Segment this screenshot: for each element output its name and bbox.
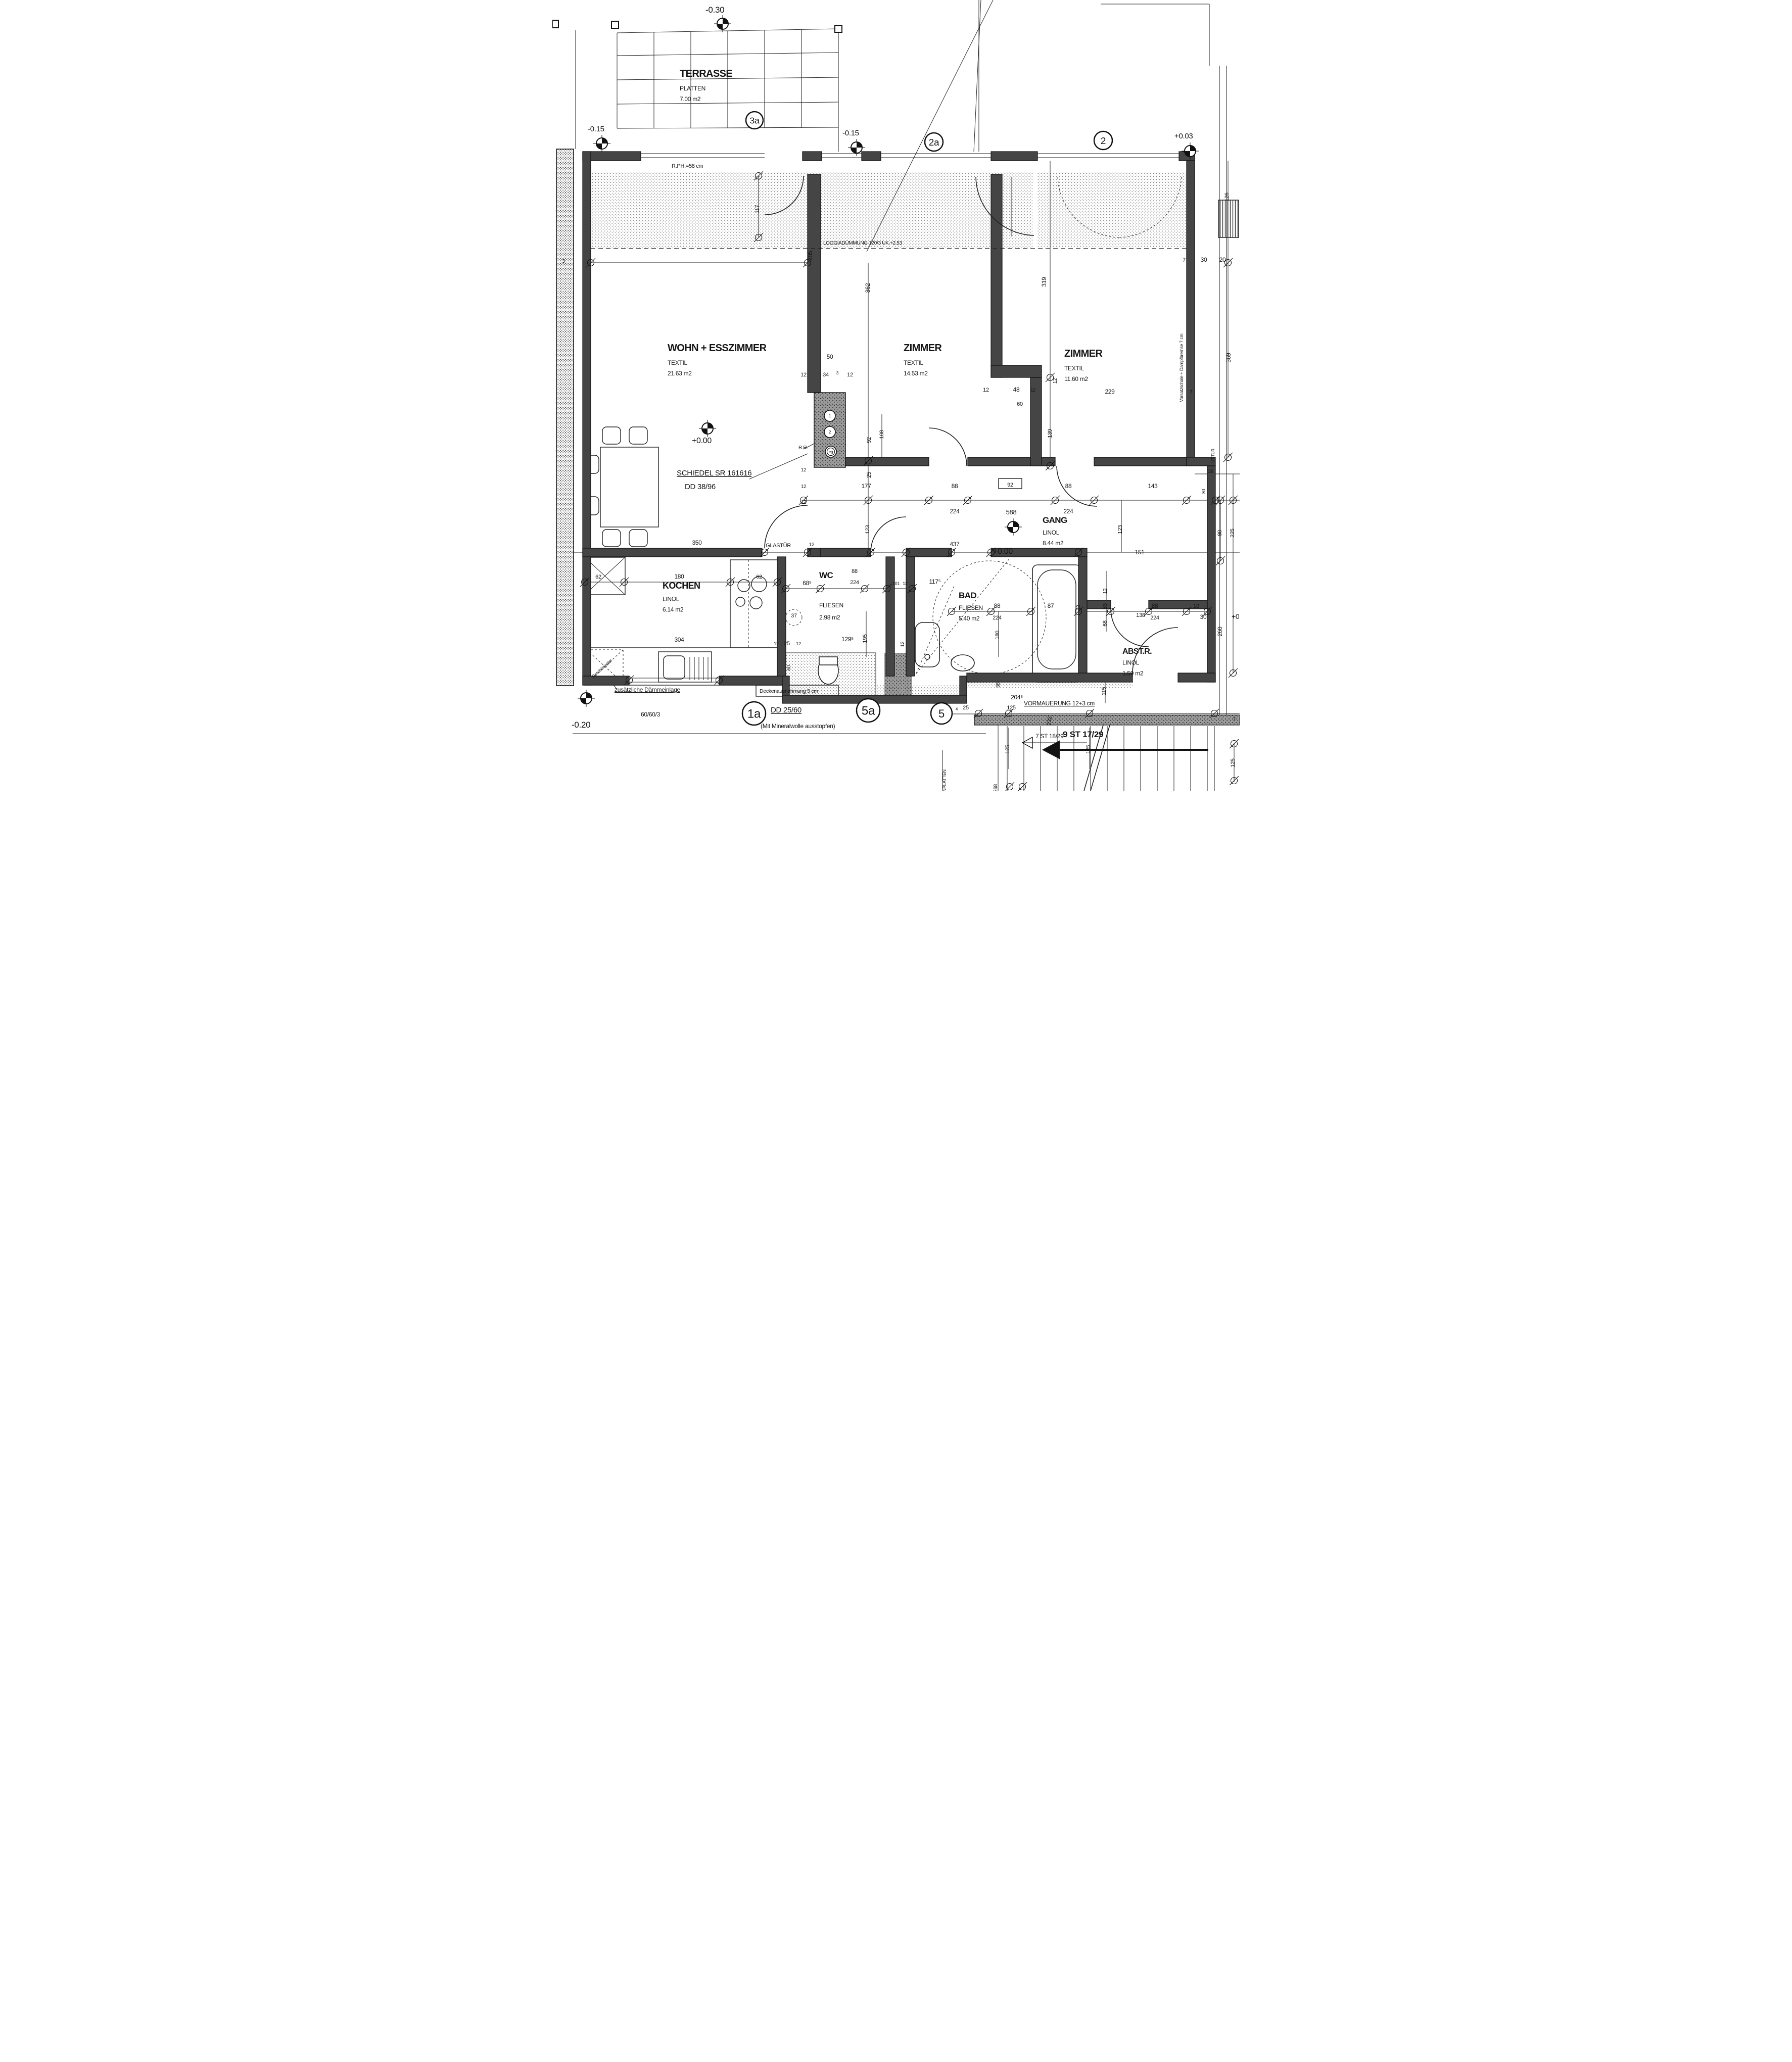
annotation-label: 12: [774, 641, 779, 646]
annotation-label: SCHIEDEL SR 161616: [677, 469, 751, 477]
room-material: LINOL: [1122, 659, 1140, 666]
annotation-label: 229: [1105, 388, 1115, 395]
annotation-label: 9 ST 17/29: [1063, 730, 1103, 739]
bad-door-swing: [933, 561, 1046, 674]
annotation-label: 34: [823, 372, 829, 378]
annotation-label: 123: [865, 525, 871, 534]
annotation-label: 126: [1224, 193, 1230, 202]
annotation-label: 68: [1102, 620, 1108, 627]
annotation-label: 88: [1065, 483, 1072, 490]
chair: [629, 530, 647, 547]
annotation-label: 117⁵: [929, 578, 941, 585]
level-marker: [593, 135, 610, 152]
axis-bubble-label: 2a: [929, 137, 939, 148]
annotation-label: 87: [1048, 602, 1054, 609]
annotation-label: 108: [879, 430, 885, 439]
dim-tick: [947, 607, 956, 616]
annotation-label: 12: [801, 467, 807, 473]
axis-bubble-label: 3a: [749, 115, 760, 125]
dim-tick: [1216, 556, 1225, 565]
annotation-label: R.R.: [798, 445, 808, 451]
annotation-label: 68⁵: [803, 580, 812, 587]
annotation-label: 12: [903, 581, 908, 586]
room-area: 14.53 m2: [904, 370, 928, 377]
washbasin-wc: [915, 622, 939, 667]
chair: [602, 530, 621, 547]
annotation-label: DD 38/96: [685, 483, 716, 491]
annotation-label: 25: [784, 641, 790, 647]
room-material: TEXTIL: [668, 359, 688, 366]
annotation-label: 319: [1041, 277, 1048, 287]
annotation-label: 224: [1150, 615, 1159, 621]
room-name: TERRASSE: [680, 68, 732, 79]
room-area: 5.40 m2: [959, 615, 980, 622]
annotation-label: 4: [956, 707, 958, 711]
annotation-label: Deckenausnehmung 5 cm: [760, 688, 818, 694]
room-material: TEXTIL: [904, 359, 924, 366]
floor-plan-page: 3a2a21a5a5 12eg TERRASSEPLATTEN7.00 m2WO…: [552, 0, 1240, 791]
stairwell-wall: [974, 715, 1240, 725]
annotation-label: 88: [1152, 602, 1158, 609]
annotation-label: 7: [1183, 257, 1186, 263]
room-name: ZIMMER: [1064, 348, 1103, 359]
annotation-label: 12: [796, 641, 801, 646]
annotation-label: +0.03: [1232, 612, 1240, 620]
annotation-label: LOGGIADÜMMUNG 120/3 UK.+2.53: [823, 240, 903, 246]
annotation-label: 60: [1017, 401, 1023, 407]
annotation-label: 12: [1076, 605, 1081, 610]
annotation-label: 30: [1201, 256, 1207, 263]
dim-tick: [726, 578, 735, 587]
annotation-label: 125: [1007, 705, 1016, 711]
annotation-label: 268: [993, 784, 999, 791]
toilet-cistern: [819, 657, 837, 665]
annotation-label: UT-TÜR: [1211, 449, 1215, 463]
annotation-label: 88: [952, 483, 958, 490]
room-area: 6.14 m2: [663, 606, 684, 613]
room-material: TEXTIL: [1064, 365, 1084, 372]
annotation-label: 117: [754, 205, 761, 214]
stair-arrow-main: [1043, 741, 1060, 759]
washbasin-bad: [951, 655, 974, 671]
annotation-label: 30: [1200, 613, 1207, 620]
dim-tick: [1182, 496, 1191, 505]
room-area: 1.59 m2: [1122, 670, 1144, 677]
annotation-label: 138: [1136, 612, 1145, 618]
dim-tick: [1230, 776, 1239, 785]
cooktop-burner: [738, 580, 750, 592]
annotation-label: 16: [1208, 469, 1213, 474]
annotation-label: 3: [562, 259, 565, 264]
annotation-label: 195: [862, 634, 868, 643]
annotation-label: 12: [1030, 388, 1035, 393]
annotation-label: -0.30: [705, 5, 724, 15]
wc-door-swing: [871, 517, 906, 552]
room-name: WC: [819, 570, 833, 580]
annotation-label: 232: [1046, 716, 1053, 726]
annotation-label: 88: [852, 568, 858, 574]
axis-bubble-label: 1a: [747, 707, 761, 721]
axis-bubble-label: 5: [938, 707, 945, 720]
annotation-label: 98: [1217, 530, 1223, 536]
dim-tick: [1090, 496, 1099, 505]
annotation-label: 125: [1086, 745, 1092, 754]
bathtub: [1032, 565, 1081, 682]
annotation-label: ENPLATTEN: [942, 770, 947, 791]
annotation-label: Geschirrspüler: [591, 658, 614, 679]
annotation-label: 10: [1193, 603, 1199, 609]
annotation-label: 224: [993, 615, 1002, 621]
annotation-label: 705: [807, 251, 814, 261]
annotation-label: 350: [692, 539, 702, 546]
room-material: FLIESEN: [819, 602, 843, 609]
annotation-label: 123: [1117, 525, 1123, 534]
room-material: LINOL: [1043, 529, 1060, 536]
annotation-label: 12: [900, 641, 906, 647]
annotation-label: 139: [1047, 429, 1053, 438]
annotation-label: 7: [1233, 717, 1236, 723]
annotation-label: 48: [1013, 386, 1020, 393]
room-name: BAD: [959, 591, 976, 600]
hatch-zones: [556, 149, 1239, 703]
room-name: ZIMMER: [904, 343, 942, 354]
annotation-label: 92: [866, 437, 872, 443]
annotation-label: 362: [864, 283, 871, 293]
annotation-label: 369: [1225, 353, 1232, 363]
chimney-flues: 12eg: [824, 410, 836, 457]
dim-tick: [1051, 496, 1060, 505]
annotation-label: 37: [791, 613, 797, 619]
dim-tick: [1229, 496, 1238, 505]
annotation-label: 224: [1063, 508, 1073, 515]
annotation-label: 38: [996, 682, 1001, 688]
chair: [602, 427, 621, 444]
dining-table: [600, 447, 658, 527]
annotation-label: -0.15: [842, 129, 859, 137]
annotation-label: +0.03: [1174, 132, 1193, 140]
annotation-label: R.PH.=58 cm: [672, 163, 703, 169]
annotation-label: 62: [756, 574, 762, 580]
annotation-label: 260: [1216, 627, 1223, 637]
annotation-label: 180: [995, 631, 1001, 640]
annotation-label: 12: [1103, 588, 1108, 594]
loggia-insulation-band-right: [1038, 172, 1187, 248]
cooktop-burner: [736, 597, 745, 606]
room-area: 2.98 m2: [819, 614, 840, 621]
level-marker: [578, 690, 595, 707]
room-name: KOCHEN: [663, 581, 700, 591]
dim-tick: [620, 578, 629, 587]
annotation-label: 20: [1219, 256, 1226, 263]
annotation-label: 125: [1005, 745, 1011, 754]
annotation-label: 304: [674, 636, 684, 643]
annotation-label: 12: [809, 542, 815, 548]
annotation-label: 224: [950, 508, 960, 515]
annotation-label: 129⁵: [841, 636, 854, 643]
dim-tick: [1018, 782, 1027, 791]
dim-tick: [816, 584, 825, 593]
room-area: 8.44 m2: [1043, 540, 1064, 547]
axis-bubble-label: 5a: [862, 704, 875, 718]
annotation-label: 125: [1230, 758, 1236, 768]
annotation-label: 115: [1101, 687, 1107, 696]
dim-tick: [1005, 782, 1014, 791]
cooktop-burner: [750, 597, 762, 609]
annotation-label: DD 25/60: [771, 706, 801, 714]
annotation-label: 204⁵: [1011, 694, 1023, 701]
room-area: 11.60 m2: [1064, 375, 1088, 382]
kitchen-counter: [730, 560, 777, 648]
floor-plan-drawing: 3a2a21a5a5 12eg TERRASSEPLATTEN7.00 m2WO…: [552, 0, 1240, 791]
annotation-label: 12: [801, 484, 807, 490]
room-area: 21.63 m2: [668, 370, 692, 377]
annotation-label: +0.00: [993, 547, 1013, 556]
room-door-swing: [929, 428, 967, 466]
dim-tick: [860, 584, 869, 593]
annotation-label: 60/60/3: [641, 711, 661, 718]
annotation-label: 588: [1006, 508, 1017, 516]
room-name: WOHN + ESSZIMMER: [668, 343, 767, 354]
annotation-label: 3: [836, 371, 839, 375]
neighbour-wall-strip: [556, 149, 574, 686]
glass-door-swing: [765, 505, 808, 548]
annotation-label: Vorsatzschale + Dampfbremse 7 cm: [1179, 333, 1184, 402]
annotation-label: zusätzliche Dämmeinlage: [615, 686, 680, 693]
annotation-label: 12: [801, 500, 807, 505]
annotation-label: 25: [866, 472, 872, 478]
annotation-label: 7 ST 18/29: [1035, 733, 1064, 740]
chair: [629, 427, 647, 444]
dim-tick: [1229, 668, 1238, 678]
annotation-label: 30: [1201, 489, 1207, 494]
annotation-label: 12: [983, 387, 989, 393]
annotation-label: 88: [994, 602, 1001, 609]
annotation-label: 225: [1230, 529, 1236, 538]
annotation-label: 12: [847, 372, 853, 378]
dim-tick: [963, 496, 972, 505]
sink-bowl: [664, 656, 685, 679]
annotation-label: 143: [1148, 483, 1158, 490]
room-material: FLIESEN: [959, 604, 983, 611]
dim-tick: [1223, 453, 1233, 462]
annotation-label: 101: [892, 581, 900, 586]
level-marker: [699, 420, 716, 437]
annotation-label: 92: [1007, 482, 1013, 488]
annotation-label: 12: [1053, 378, 1058, 383]
room-material: PLATTEN: [680, 85, 705, 92]
room-material: LINOL: [663, 595, 680, 602]
dim-tick: [924, 496, 933, 505]
vormauerung-hatch: [967, 682, 1133, 688]
annotation-label: VORMAUERUNG 12+3 cm: [1024, 700, 1095, 707]
annotation-label: 7: [1190, 390, 1193, 395]
annotation-label: -0.20: [572, 720, 590, 730]
dim-tick: [864, 496, 873, 505]
axis-bubble-label: 2: [1101, 136, 1106, 147]
stairs: [998, 725, 1240, 791]
dim-tick: [1216, 496, 1225, 505]
dim-tick: [1230, 739, 1239, 748]
annotation-label: 151: [1135, 549, 1145, 556]
annotation-label: 25: [963, 705, 969, 711]
room-name: ABST.R.: [1122, 647, 1152, 656]
room-area: 7.00 m2: [680, 95, 701, 103]
level-marker: [714, 15, 731, 32]
chimney-flue-label: eg: [829, 450, 833, 454]
radiator: [1218, 200, 1239, 237]
annotation-label: (Mit Mineralwolle ausstopfen): [761, 723, 835, 730]
annotation-label: +0.00: [692, 437, 712, 445]
annotation-label: 50: [827, 353, 833, 360]
annotation-label: 60: [786, 665, 792, 670]
annotation-label: 53: [1102, 603, 1108, 609]
annotation-label: 12: [800, 372, 807, 378]
annotation-label: 180: [674, 573, 684, 580]
annotation-label: 177: [861, 483, 871, 490]
annotation-label: -0.15: [588, 125, 604, 133]
annotation-label: 224: [850, 580, 859, 586]
level-marker: [1005, 518, 1022, 536]
annotation-label: GLASTÜR: [766, 543, 791, 549]
room-name: GANG: [1043, 515, 1067, 525]
annotation-label: 437: [950, 541, 960, 548]
annotation-label: 62: [595, 574, 601, 580]
